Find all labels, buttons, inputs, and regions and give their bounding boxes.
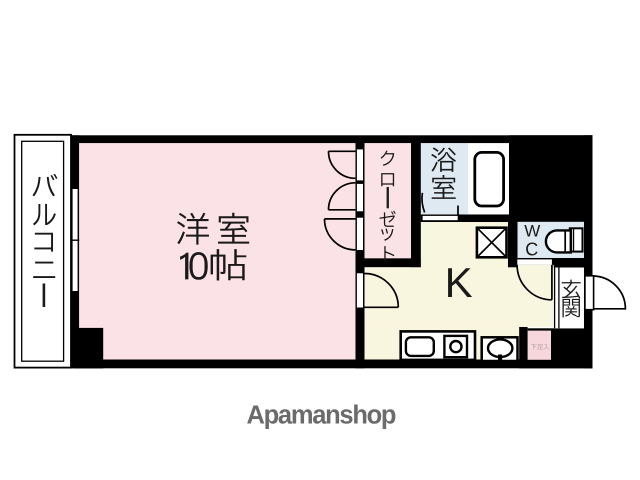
svg-text:W: W: [524, 221, 540, 240]
svg-text:Apamanshop: Apamanshop: [247, 402, 396, 430]
svg-text:K: K: [445, 259, 473, 306]
svg-text:C: C: [525, 240, 538, 260]
